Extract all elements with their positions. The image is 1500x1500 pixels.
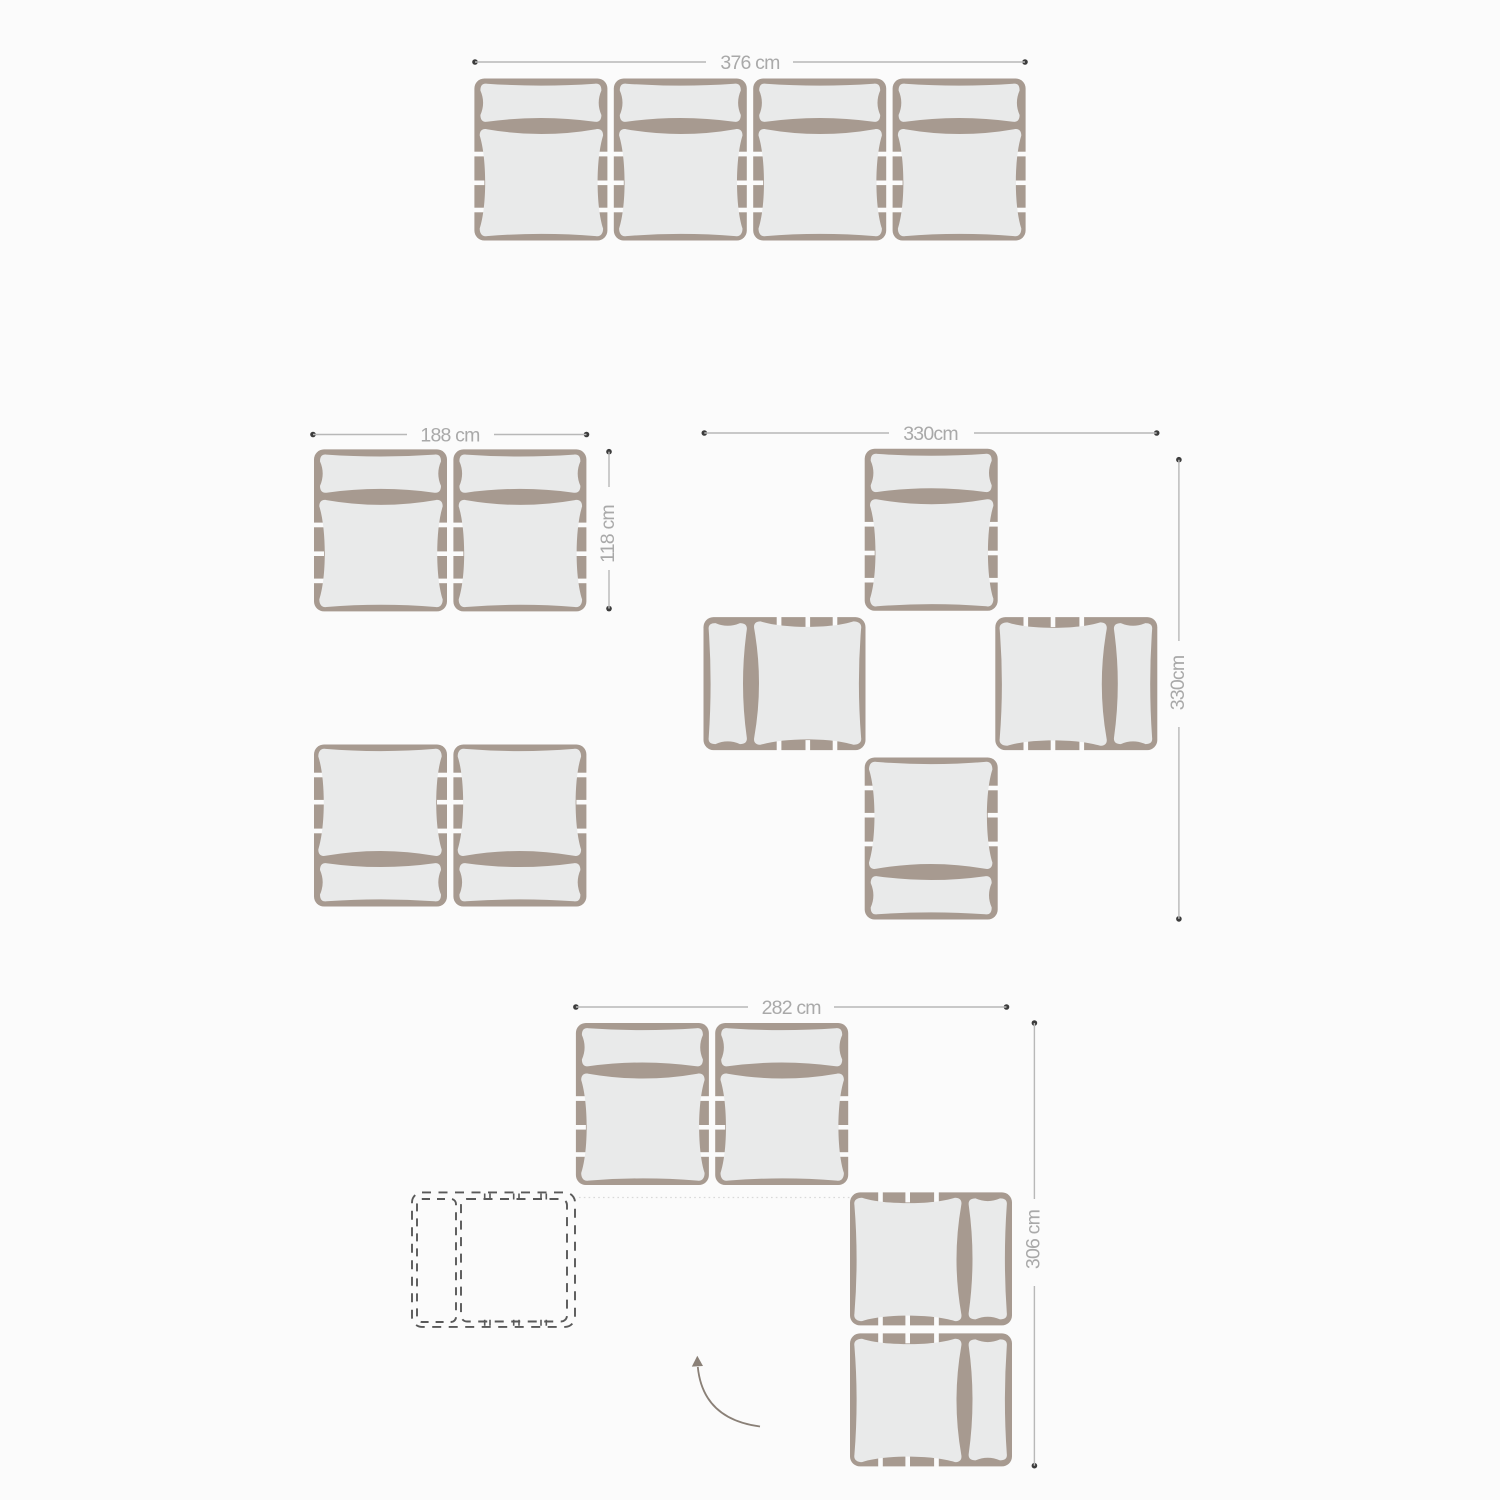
svg-text:118 cm: 118 cm [597, 505, 619, 563]
svg-text:330cm: 330cm [1167, 656, 1189, 711]
svg-text:330cm: 330cm [903, 423, 958, 445]
svg-text:306 cm: 306 cm [1022, 1210, 1044, 1269]
svg-text:188 cm: 188 cm [420, 425, 479, 447]
svg-text:282 cm: 282 cm [762, 997, 821, 1019]
svg-text:376 cm: 376 cm [720, 52, 779, 74]
